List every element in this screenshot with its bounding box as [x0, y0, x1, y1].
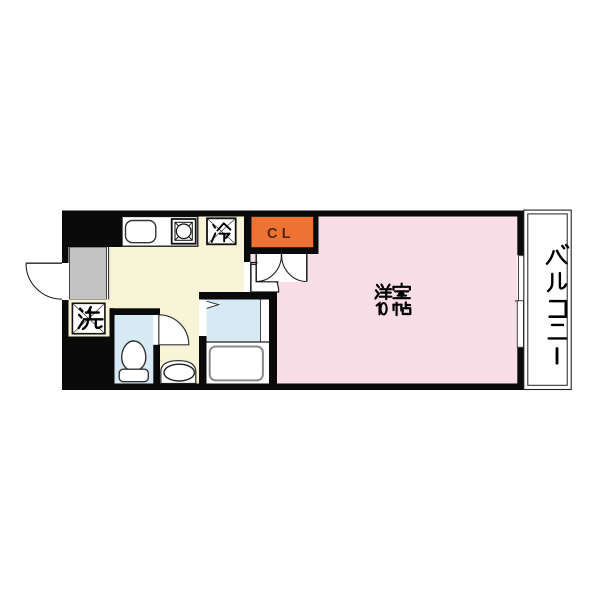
svg-text:L: L [282, 226, 291, 242]
svg-text:C: C [267, 226, 278, 242]
